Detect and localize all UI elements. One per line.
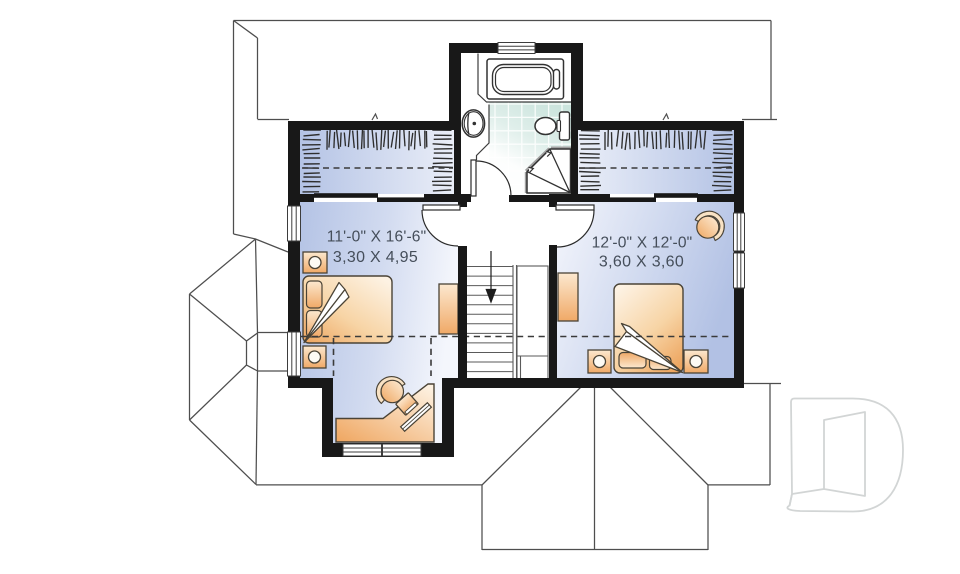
svg-text:12'-0" X 12'-0": 12'-0" X 12'-0"	[592, 235, 693, 252]
svg-text:3,30 X 4,95: 3,30 X 4,95	[333, 249, 418, 266]
svg-text:11'-0" X 16'-6": 11'-0" X 16'-6"	[327, 229, 427, 246]
svg-text:3,60 X 3,60: 3,60 X 3,60	[599, 254, 684, 271]
